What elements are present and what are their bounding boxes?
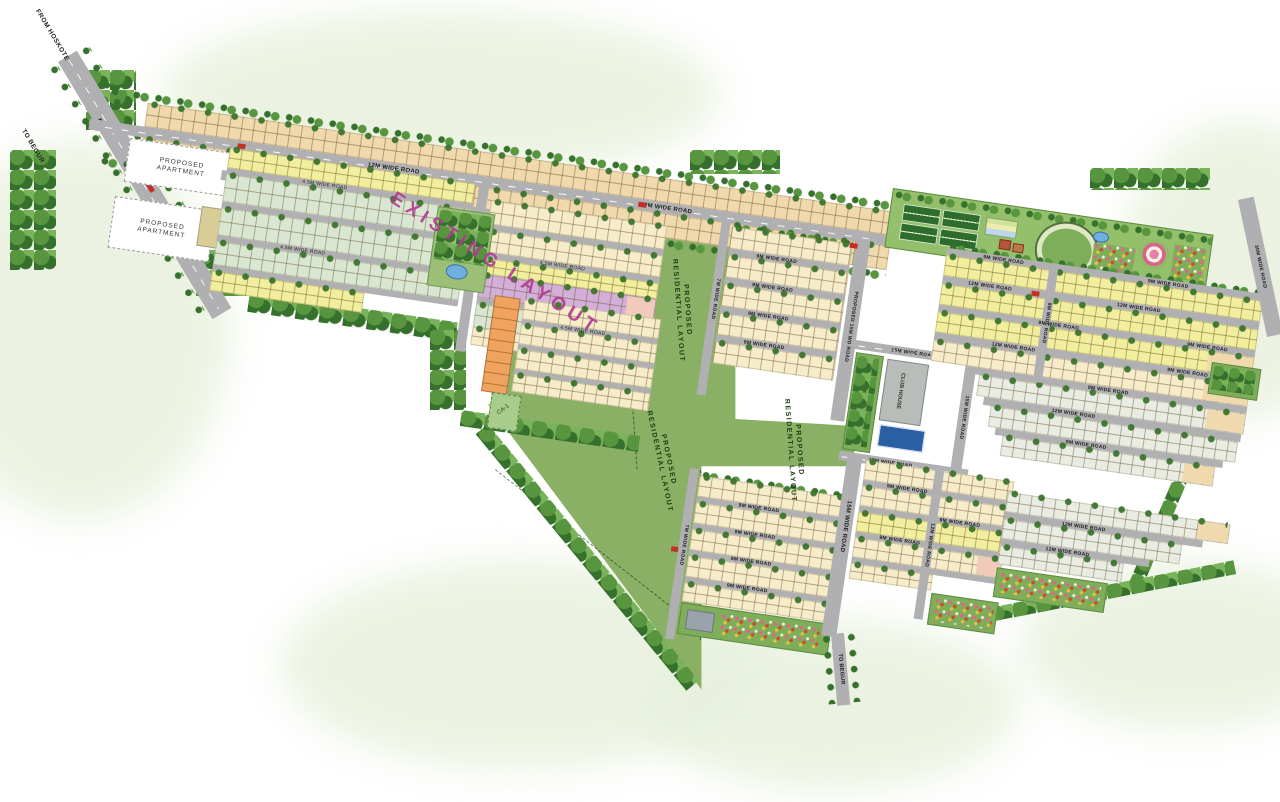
tree-grove (1090, 168, 1210, 190)
begur-exit-road: TO BEGUR (831, 633, 850, 706)
tennis-court (899, 223, 939, 245)
central-plot-block: 7M WIDE ROAD 9M WIDE ROAD 9M WIDE ROAD 9… (696, 220, 873, 422)
amenity-legend (984, 217, 1018, 239)
from-hoskote-label: FROM HOSKOTE (34, 8, 70, 62)
gate-marker (1031, 291, 1040, 297)
bottom-left-rows: 9M WIDE ROAD 9M WIDE ROAD 9M WIDE ROAD 9… (682, 470, 850, 623)
site-master-plan: FROM HOSKOTE TO BEGUR 12M WIDE ROAD 12M … (0, 0, 1280, 802)
road-label: 15M WIDE ROAD (891, 347, 936, 359)
pond (445, 263, 469, 281)
mandala-garden (1137, 237, 1171, 271)
club-house-label: CLUB HOUSE (895, 372, 906, 409)
gate-marker (671, 546, 679, 552)
civic-amenity-parcel: CA-1 (487, 392, 522, 432)
gate-marker (849, 243, 858, 249)
road-label: 15M WIDE ROAD (838, 500, 851, 553)
garden-flowers (931, 597, 994, 629)
tree-grove (10, 150, 56, 270)
central-rows: 9M WIDE ROAD 9M WIDE ROAD 9M WIDE ROAD 9… (712, 222, 853, 381)
to-begur-label-bottom: TO BEGUR (836, 653, 845, 685)
tree-grove (690, 150, 780, 174)
ca1-label: CA-1 (496, 403, 511, 416)
park-trees (1211, 365, 1256, 395)
sports-court (685, 609, 716, 633)
